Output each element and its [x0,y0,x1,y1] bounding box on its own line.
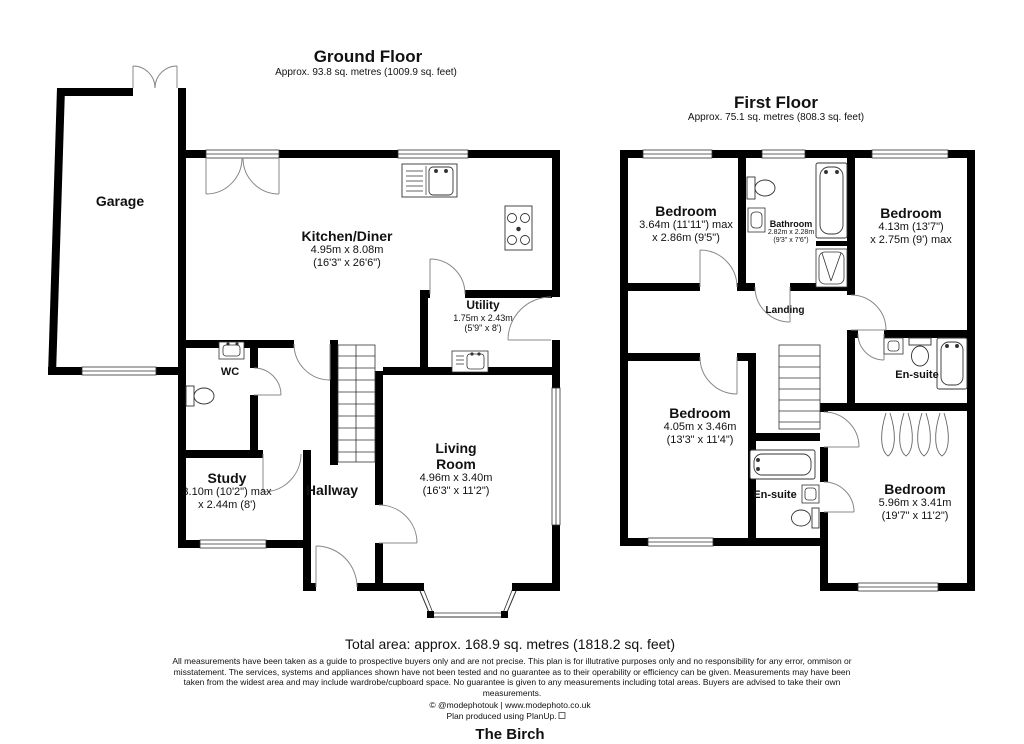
ground-floor-subtitle: Approx. 93.8 sq. metres (1009.9 sq. feet… [275,67,457,79]
kitchen-sink-icon [402,164,457,197]
door-arc-ensuite-bottom [824,482,854,512]
utility-sink-icon [452,351,488,372]
produced-by-text: Plan produced using PlanUp. [446,712,565,722]
ensuite-right-toilet-icon [909,338,931,366]
floor-plan-drawing [0,0,1024,744]
room-label-landing: Landing [766,305,805,317]
room-label-living-room: Living Room 4.96m x 3.40m (16'3" x 11'2"… [420,440,493,497]
bathroom-toilet-icon [747,177,775,199]
window [648,538,713,546]
window [643,150,712,158]
door-arc-wc [254,368,281,395]
door-arc-bedroom-top-right [851,295,886,330]
door-arc-ensuite-right [858,334,884,360]
door-arc-utility [430,259,465,294]
window [398,150,468,158]
door-arc-kitchen-hall [294,344,330,380]
door-arc-living [379,505,417,543]
room-label-bedroom-top-left: Bedroom 3.64m (11'11") max x 2.86m (9'5"… [639,203,733,244]
wc-toilet-icon [186,386,214,406]
property-name: The Birch [475,726,544,743]
hob-icon [505,206,532,250]
ground-floor-plan [48,66,560,618]
disclaimer-text: All measurements have been taken as a gu… [167,656,857,698]
french-door-arc [206,158,279,194]
window [552,388,560,525]
door-arc-bedroom-bottom-right [824,412,859,447]
door-arc-utility-exterior [508,297,551,340]
walls [48,88,560,591]
planup-logo-icon [559,712,566,719]
first-floor-subtitle: Approx. 75.1 sq. metres (808.3 sq. feet) [688,112,864,124]
credit-text: © @modephotouk | www.modephoto.co.uk [429,701,590,711]
room-label-bedroom-bottom-right: Bedroom 5.96m x 3.41m (19'7" x 11'2") [879,481,952,522]
door-arc-front [316,546,357,587]
window [762,150,805,158]
room-label-garage: Garage [96,193,144,209]
ensuite-right-basin-icon [884,338,903,354]
bathroom-basin-icon [748,208,765,232]
floor-plan-page: Ground Floor Approx. 93.8 sq. metres (10… [0,0,1024,744]
bay-window [416,583,520,618]
ensuite-bottom-bath-icon [750,450,815,479]
ensuite-bottom-toilet-icon [792,508,820,528]
bathroom-divider-wall [816,241,847,246]
room-label-hallway: Hallway [306,482,358,498]
door-arc-bedroom-bottom-left [700,357,737,394]
window [200,540,266,548]
stairs-ground [338,345,375,462]
window [82,367,156,375]
total-area-text: Total area: approx. 168.9 sq. metres (18… [345,636,675,652]
room-label-wc: WC [221,366,239,379]
ensuite-bottom-basin-icon [802,485,819,503]
wardrobe-icon [882,413,949,456]
window [858,583,938,591]
garage-door-arc [133,66,177,88]
first-floor-title: First Floor [734,93,818,113]
room-label-ensuite-right: En-suite [895,369,938,382]
room-label-kitchen-diner: Kitchen/Diner 4.95m x 8.08m (16'3" x 26'… [301,228,392,269]
shower-icon [816,249,847,287]
ground-floor-title: Ground Floor [314,47,423,67]
wc-basin-icon [219,342,244,359]
window [206,150,279,158]
room-label-study: Study 3.10m (10'2") max x 2.44m (8') [182,470,271,511]
stairs-first [779,345,820,429]
ensuite-right-bath-icon [937,338,967,389]
room-label-ensuite-bottom: En-suite [753,489,796,502]
room-label-bedroom-bottom-left: Bedroom 4.05m x 3.46m (13'3" x 11'4") [664,405,737,446]
room-label-utility: Utility 1.75m x 2.43m (5'9" x 8') [453,299,513,333]
bathroom-bath-icon [816,163,847,238]
window [872,150,948,158]
door-arc-bedroom-top-left [700,250,737,287]
room-label-bedroom-top-right: Bedroom 4.13m (13'7") x 2.75m (9') max [870,205,952,246]
room-label-bathroom: Bathroom 2.82m x 2.28m (9'3" x 7'6") [768,219,814,245]
